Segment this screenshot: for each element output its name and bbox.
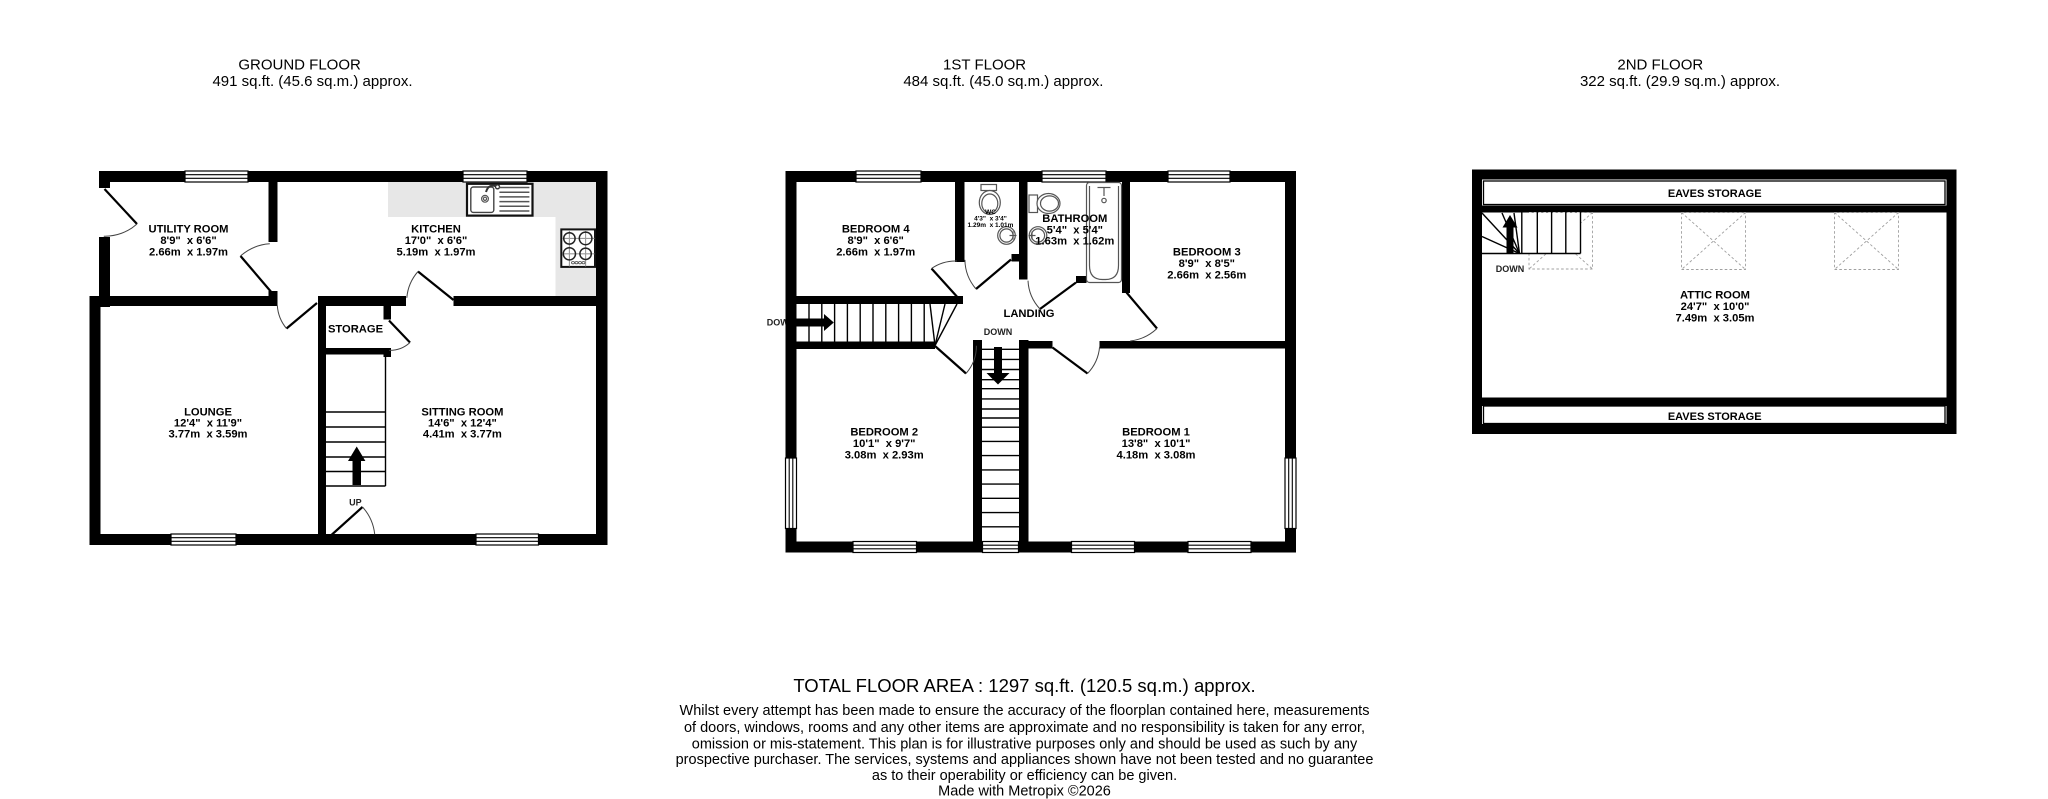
svg-text:8'9" x 6'6": 8'9" x 6'6" (848, 235, 904, 247)
svg-text:BEDROOM 3: BEDROOM 3 (1173, 247, 1241, 259)
svg-text:3.08m x 2.93m: 3.08m x 2.93m (845, 450, 924, 462)
svg-text:10'1" x 9'7": 10'1" x 9'7" (853, 438, 916, 450)
svg-text:2.66m x 2.56m: 2.66m x 2.56m (1167, 270, 1246, 282)
svg-text:484 sq.ft. (45.0 sq.m.) approx: 484 sq.ft. (45.0 sq.m.) approx. (903, 73, 1103, 90)
svg-text:UTILITY ROOM: UTILITY ROOM (149, 224, 229, 236)
svg-text:2.66m x 1.97m: 2.66m x 1.97m (149, 247, 228, 259)
svg-text:UP: UP (349, 498, 362, 508)
svg-text:491 sq.ft. (45.6 sq.m.) approx: 491 sq.ft. (45.6 sq.m.) approx. (212, 73, 412, 90)
svg-text:GROUND FLOOR: GROUND FLOOR (238, 56, 361, 73)
svg-text:4.41m x 3.77m: 4.41m x 3.77m (423, 428, 502, 440)
svg-text:1.29m x 1.01m: 1.29m x 1.01m (968, 222, 1014, 229)
svg-text:4.18m x 3.08m: 4.18m x 3.08m (1117, 450, 1196, 462)
svg-text:ATTIC ROOM: ATTIC ROOM (1680, 290, 1750, 302)
svg-text:2ND FLOOR: 2ND FLOOR (1617, 56, 1703, 73)
svg-text:STORAGE: STORAGE (328, 324, 384, 336)
svg-text:8'9" x 6'6": 8'9" x 6'6" (160, 235, 216, 247)
svg-text:17'0" x 6'6": 17'0" x 6'6" (405, 235, 468, 247)
svg-text:7.49m x 3.05m: 7.49m x 3.05m (1676, 313, 1755, 325)
svg-text:2.66m x 1.97m: 2.66m x 1.97m (836, 247, 915, 259)
svg-text:Whilst every attempt has been: Whilst every attempt has been made to en… (680, 703, 1370, 719)
svg-text:prospective purchaser. The ser: prospective purchaser. The services, sys… (676, 752, 1374, 768)
svg-text:24'7" x 10'0": 24'7" x 10'0" (1681, 301, 1750, 313)
svg-text:BEDROOM 1: BEDROOM 1 (1122, 427, 1190, 439)
svg-text:1.63m x 1.62m: 1.63m x 1.62m (1035, 236, 1114, 248)
svg-text:KITCHEN: KITCHEN (411, 224, 461, 236)
svg-text:LANDING: LANDING (1004, 308, 1055, 320)
svg-text:1ST FLOOR: 1ST FLOOR (943, 56, 1026, 73)
svg-text:BATHROOM: BATHROOM (1042, 213, 1107, 225)
svg-text:DOWN: DOWN (1496, 264, 1525, 274)
svg-text:BEDROOM 2: BEDROOM 2 (850, 427, 918, 439)
svg-text:3.77m x 3.59m: 3.77m x 3.59m (169, 428, 248, 440)
svg-text:5.19m x 1.97m: 5.19m x 1.97m (397, 247, 476, 259)
svg-text:as to their operability or eff: as to their operability or efficiency ca… (872, 768, 1177, 784)
svg-text:EAVES STORAGE: EAVES STORAGE (1668, 411, 1762, 423)
svg-text:EAVES STORAGE: EAVES STORAGE (1668, 188, 1762, 200)
svg-text:TOTAL FLOOR AREA : 1297 sq.ft.: TOTAL FLOOR AREA : 1297 sq.ft. (120.5 sq… (793, 675, 1255, 696)
svg-text:5'4" x 5'4": 5'4" x 5'4" (1047, 224, 1103, 236)
svg-text:13'8" x 10'1": 13'8" x 10'1" (1122, 438, 1191, 450)
svg-text:322 sq.ft. (29.9 sq.m.) approx: 322 sq.ft. (29.9 sq.m.) approx. (1580, 73, 1780, 90)
svg-text:Made with Metropix ©2026: Made with Metropix ©2026 (938, 784, 1111, 799)
svg-text:8'9" x 8'5": 8'9" x 8'5" (1179, 258, 1235, 270)
svg-text:DOWN: DOWN (984, 327, 1013, 337)
svg-text:of doors, windows, rooms and a: of doors, windows, rooms and any other i… (684, 720, 1365, 736)
svg-text:BEDROOM 4: BEDROOM 4 (842, 224, 911, 236)
svg-text:omission or mis-statement. Thi: omission or mis-statement. This plan is … (692, 736, 1358, 752)
